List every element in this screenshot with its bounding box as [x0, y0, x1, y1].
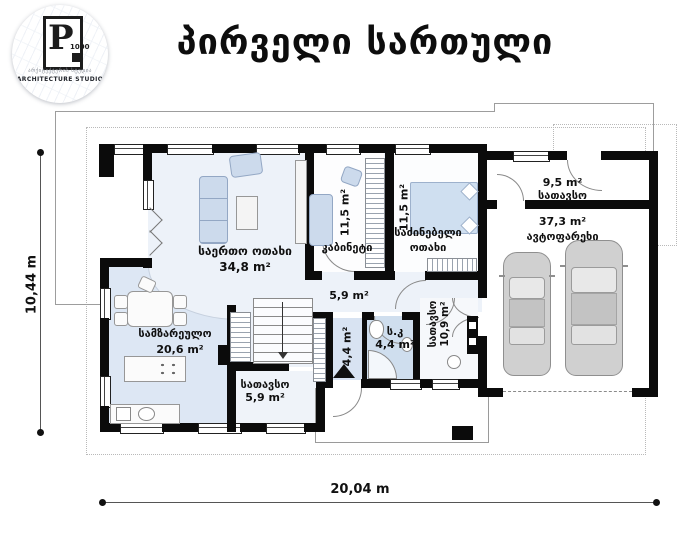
wall — [325, 379, 333, 388]
chair — [114, 312, 128, 326]
room-label-garage-name: ავტოფარეხი — [515, 230, 610, 243]
wall — [487, 388, 503, 397]
window — [100, 288, 111, 320]
chair — [173, 295, 187, 309]
terrace-outline — [55, 304, 103, 305]
room-label-garage-area: 37,3 m² — [520, 215, 605, 228]
chair — [114, 295, 128, 309]
car — [503, 252, 551, 376]
dimension-dot — [653, 499, 660, 506]
coffee-table — [236, 196, 258, 230]
dimension-dot — [99, 499, 106, 506]
wall — [548, 151, 567, 160]
window — [167, 144, 214, 155]
wall — [487, 200, 497, 209]
dining-table — [127, 291, 173, 327]
car-mirror — [549, 275, 555, 277]
room-label-kitchen-area: 20,6 m² — [130, 343, 230, 356]
wall — [212, 144, 256, 153]
kitchen-island — [124, 356, 186, 382]
garage-door-dashed — [503, 391, 632, 392]
appliance-stack — [467, 316, 478, 354]
floor-plan-page: P 1000 არქიტექტურის სტუდია ARCHITECTURE … — [0, 0, 700, 539]
wall — [420, 379, 432, 388]
logo-number: 1000 — [70, 43, 89, 51]
room-label-utility-name: სათავსო — [427, 296, 439, 352]
wall — [385, 144, 394, 280]
wall — [632, 388, 658, 397]
room-label-cabinet-name: კაბინეტი — [305, 241, 389, 254]
room-label-storage-small-area: 5,9 m² — [227, 391, 303, 404]
room-label-living-area: 34,8 m² — [160, 261, 330, 274]
dimension-dot — [37, 149, 44, 156]
room-label-bedroom-name1: საძინებელი — [383, 226, 473, 239]
logo-studio-line: ARCHITECTURE STUDIO — [12, 76, 108, 83]
stair-arrow-line — [282, 302, 283, 352]
wall — [649, 151, 658, 397]
armchair — [229, 152, 264, 178]
dimension-dot — [37, 429, 44, 436]
terrace-outline — [494, 103, 654, 104]
window — [395, 144, 431, 155]
room-label-hall-area: 5,9 m² — [320, 289, 378, 302]
sofa — [199, 176, 228, 244]
logo-house-icon — [72, 53, 81, 62]
dimension-label-horizontal: 20,04 m — [290, 482, 430, 497]
room-label-utility-area: 10,9 m² — [439, 296, 451, 352]
dimension-line-vertical — [40, 152, 41, 433]
room-label-utility: სათავსო 10,9 m² — [427, 296, 453, 352]
wall — [325, 312, 333, 388]
room-label-cabinet-area: 11,5 m² — [339, 188, 352, 238]
wall — [99, 144, 114, 177]
wall — [425, 271, 487, 280]
appliance-window — [469, 338, 476, 345]
window — [120, 423, 164, 434]
wall — [478, 336, 487, 397]
window — [143, 180, 154, 210]
window — [266, 423, 306, 434]
closet — [427, 258, 477, 272]
wall — [354, 271, 395, 280]
porch-corner-pier — [452, 426, 473, 440]
dimension-label-vertical: 10,44 m — [25, 253, 40, 317]
room-label-kitchen-name: სამზარეულო — [125, 327, 225, 340]
car-mirror — [560, 265, 566, 267]
room-label-vestibule-area: 4,4 m² — [341, 322, 354, 372]
appliance-window — [469, 322, 476, 329]
room-label-bedroom-name2: ოთახი — [383, 241, 473, 254]
car-windshield — [509, 277, 545, 299]
chair — [173, 312, 187, 326]
wall — [361, 379, 390, 388]
window — [432, 379, 460, 390]
window — [114, 144, 145, 155]
room-label-storage-top-area: 9,5 m² — [520, 176, 605, 189]
window — [390, 379, 422, 390]
pillow — [460, 182, 478, 200]
wall — [487, 151, 513, 160]
closet — [313, 318, 326, 382]
wall — [240, 423, 266, 432]
dimension-line-horizontal — [103, 502, 657, 503]
studio-logo: P 1000 არქიტექტურის სტუდია ARCHITECTURE … — [12, 5, 108, 103]
terrace-outline — [494, 103, 495, 112]
car-mirror — [622, 265, 628, 267]
tv-console — [295, 160, 307, 244]
room-label-wc-name: ს.კ — [370, 325, 420, 338]
terrace-outline — [55, 111, 56, 305]
stair-arrow-head — [278, 352, 288, 359]
office-sofa — [309, 194, 333, 246]
water-heater — [447, 355, 461, 369]
car-roof — [509, 299, 545, 327]
wall — [362, 318, 367, 379]
wall — [100, 318, 109, 376]
cooktop — [116, 407, 131, 421]
sink — [138, 407, 155, 421]
wall — [143, 144, 152, 180]
logo-georgian-line: არქიტექტურის სტუდია — [12, 68, 108, 74]
car-roof — [571, 293, 617, 325]
wall — [100, 423, 120, 432]
wall — [458, 379, 478, 388]
closet — [230, 312, 251, 362]
stove-burners — [157, 361, 179, 376]
car-rear-window — [509, 327, 545, 345]
terrace-outline — [55, 111, 495, 112]
room-label-storage-small-name: სათავსო — [227, 378, 303, 391]
room-label-storage-top-name: სათავსო — [520, 189, 605, 202]
car — [565, 240, 623, 376]
room-label-bedroom-area: 11,5 m² — [398, 183, 411, 233]
room-label-wc-area: 4,4 m² — [370, 338, 420, 351]
window — [326, 144, 361, 155]
car-rear-window — [571, 325, 617, 345]
car-windshield — [571, 267, 617, 293]
car-mirror — [499, 275, 505, 277]
terrace-outline — [653, 103, 654, 151]
window — [256, 144, 300, 155]
wall — [162, 423, 198, 432]
window — [513, 151, 550, 162]
wall — [100, 258, 109, 288]
page-title: პირველი სართული — [150, 22, 580, 63]
